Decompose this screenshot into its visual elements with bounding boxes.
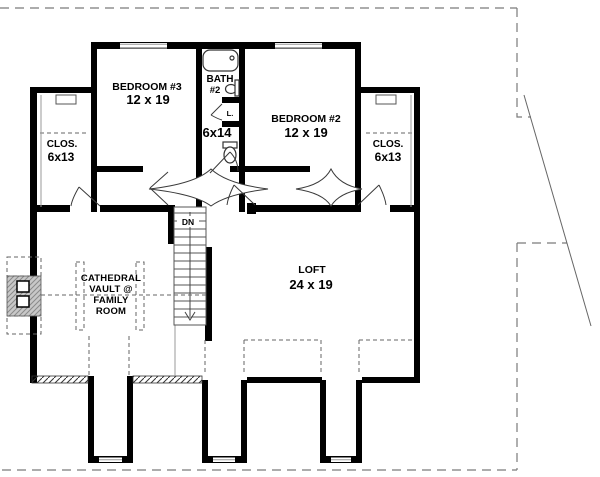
family-room-note-line3: FAMILY (93, 295, 129, 306)
family-room-note-line1: CATHEDRAL (81, 273, 141, 284)
closet-right-door (358, 185, 386, 205)
staircase: DN (174, 207, 206, 325)
floor-plan-drawing: DN BEDROOM #3 12 x 19 BATH #2 6x14 L. BE… (0, 0, 600, 477)
bath-dims: 6x14 (203, 125, 233, 140)
bedroom3-dims: 12 x 19 (126, 92, 169, 107)
linen-label: L. (227, 109, 234, 118)
bedroom2-label: BEDROOM #2 (271, 113, 341, 125)
window-dormer-left (99, 458, 122, 463)
roof-slope-line (524, 95, 591, 326)
closet-right-label: CLOS. (373, 139, 404, 150)
loft-label: LOFT (298, 264, 326, 276)
linen-door-arc (211, 115, 222, 120)
dormer-left-dashed (89, 336, 129, 375)
knee-walls (32, 376, 202, 383)
stairs-dn-label: DN (182, 217, 194, 227)
walls (30, 42, 420, 463)
knee-wall-left (32, 376, 88, 383)
toilet (224, 147, 236, 163)
family-room-note-line2: VAULT @ (89, 284, 133, 295)
bathtub-drain (230, 56, 234, 60)
bedroom2-dims: 12 x 19 (284, 125, 327, 140)
bath-label-line2: #2 (210, 85, 221, 96)
loft-dims: 24 x 19 (289, 277, 332, 292)
vanity (235, 80, 239, 96)
linen-door-leaf (211, 104, 222, 115)
knee-wall-right (133, 376, 202, 383)
floor-plan-page: DN BEDROOM #3 12 x 19 BATH #2 6x14 L. BE… (0, 0, 600, 477)
closet-right-dims: 6x13 (375, 150, 402, 164)
window-top-right (275, 43, 322, 49)
window-dormer-middle (213, 458, 235, 463)
bath-fixtures (203, 50, 239, 163)
family-room-note-line4: ROOM (96, 306, 126, 317)
closet-left-label: CLOS. (47, 139, 78, 150)
flue-bottom (17, 296, 29, 307)
closet-left-dims: 6x13 (48, 150, 75, 164)
window-top-left (120, 43, 167, 49)
closet-left-shelf (56, 95, 76, 104)
bath-label-line1: BATH (206, 74, 233, 85)
closet-right-shelf (376, 95, 396, 104)
roof-dashed-right-upper (517, 8, 531, 117)
bathtub (203, 50, 238, 71)
flue-top (17, 281, 29, 292)
loft-knee-dashed (205, 340, 414, 375)
window-dormer-right (331, 458, 351, 463)
hall-door-star-right (296, 169, 362, 206)
